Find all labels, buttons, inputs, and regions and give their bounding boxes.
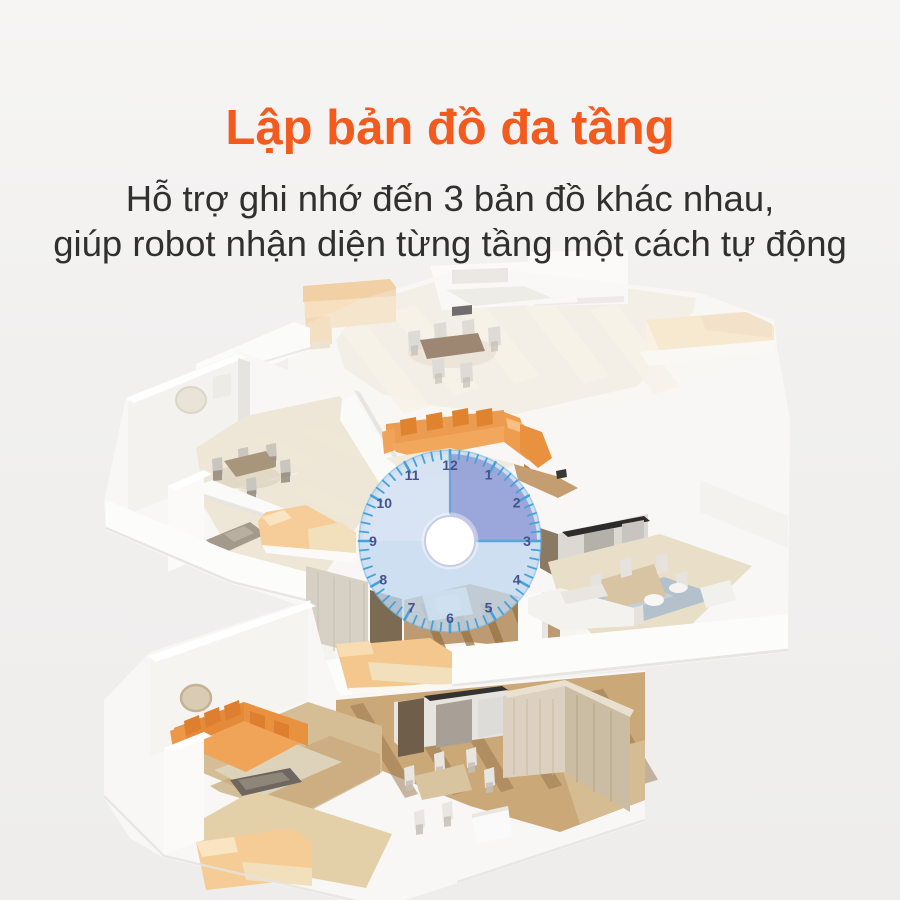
svg-text:9: 9	[369, 533, 377, 549]
svg-text:4: 4	[513, 572, 521, 588]
svg-text:6: 6	[446, 610, 454, 626]
svg-text:10: 10	[376, 495, 392, 511]
svg-text:8: 8	[379, 572, 387, 588]
svg-text:12: 12	[442, 457, 458, 473]
svg-text:2: 2	[513, 495, 521, 511]
svg-text:1: 1	[485, 466, 493, 482]
svg-text:7: 7	[408, 600, 416, 616]
svg-text:3: 3	[523, 533, 531, 549]
svg-text:11: 11	[405, 467, 420, 483]
svg-text:5: 5	[485, 600, 493, 616]
